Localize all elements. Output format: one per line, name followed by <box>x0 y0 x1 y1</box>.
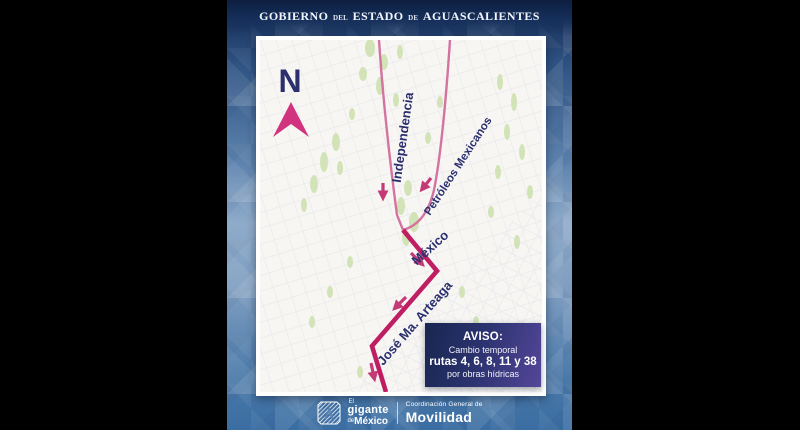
org-name-small: Coordinación General de <box>406 402 483 409</box>
hatched-a-emblem-icon <box>316 400 342 426</box>
notice-line-3: por obras hídricas <box>425 369 541 379</box>
title-word-estado: Estado <box>353 5 404 24</box>
page-title: Gobierno del Estado de Aguascalientes <box>227 5 572 25</box>
title-word-del: del <box>333 12 348 23</box>
poster-canvas: Gobierno del Estado de Aguascalientes <box>227 0 572 430</box>
brand-de-mexico: deMéxico <box>347 417 388 427</box>
notice-box: AVISO: Cambio temporal rutas 4, 6, 8, 11… <box>425 323 541 387</box>
footer: El gigante deMéxico Coordinación General… <box>227 396 572 430</box>
title-word-gobierno: Gobierno <box>259 5 328 24</box>
org-name-large: Movilidad <box>406 410 483 424</box>
notice-routes: rutas 4, 6, 8, 11 y 38 <box>425 356 541 368</box>
state-brand-logo: El gigante deMéxico <box>316 399 388 427</box>
notice-title: AVISO: <box>425 331 541 343</box>
brand-wordmark: El gigante deMéxico <box>347 399 388 427</box>
brand-gigante: gigante <box>347 405 388 416</box>
mobility-org-logo: Coordinación General de Movilidad <box>406 402 483 424</box>
compass-north-label: N <box>278 63 301 99</box>
title-word-de: de <box>408 12 418 23</box>
footer-divider <box>397 402 398 424</box>
title-word-aguascalientes: Aguascalientes <box>423 5 540 24</box>
brand-mexico: México <box>354 416 388 427</box>
notice-line-1: Cambio temporal <box>425 345 541 355</box>
